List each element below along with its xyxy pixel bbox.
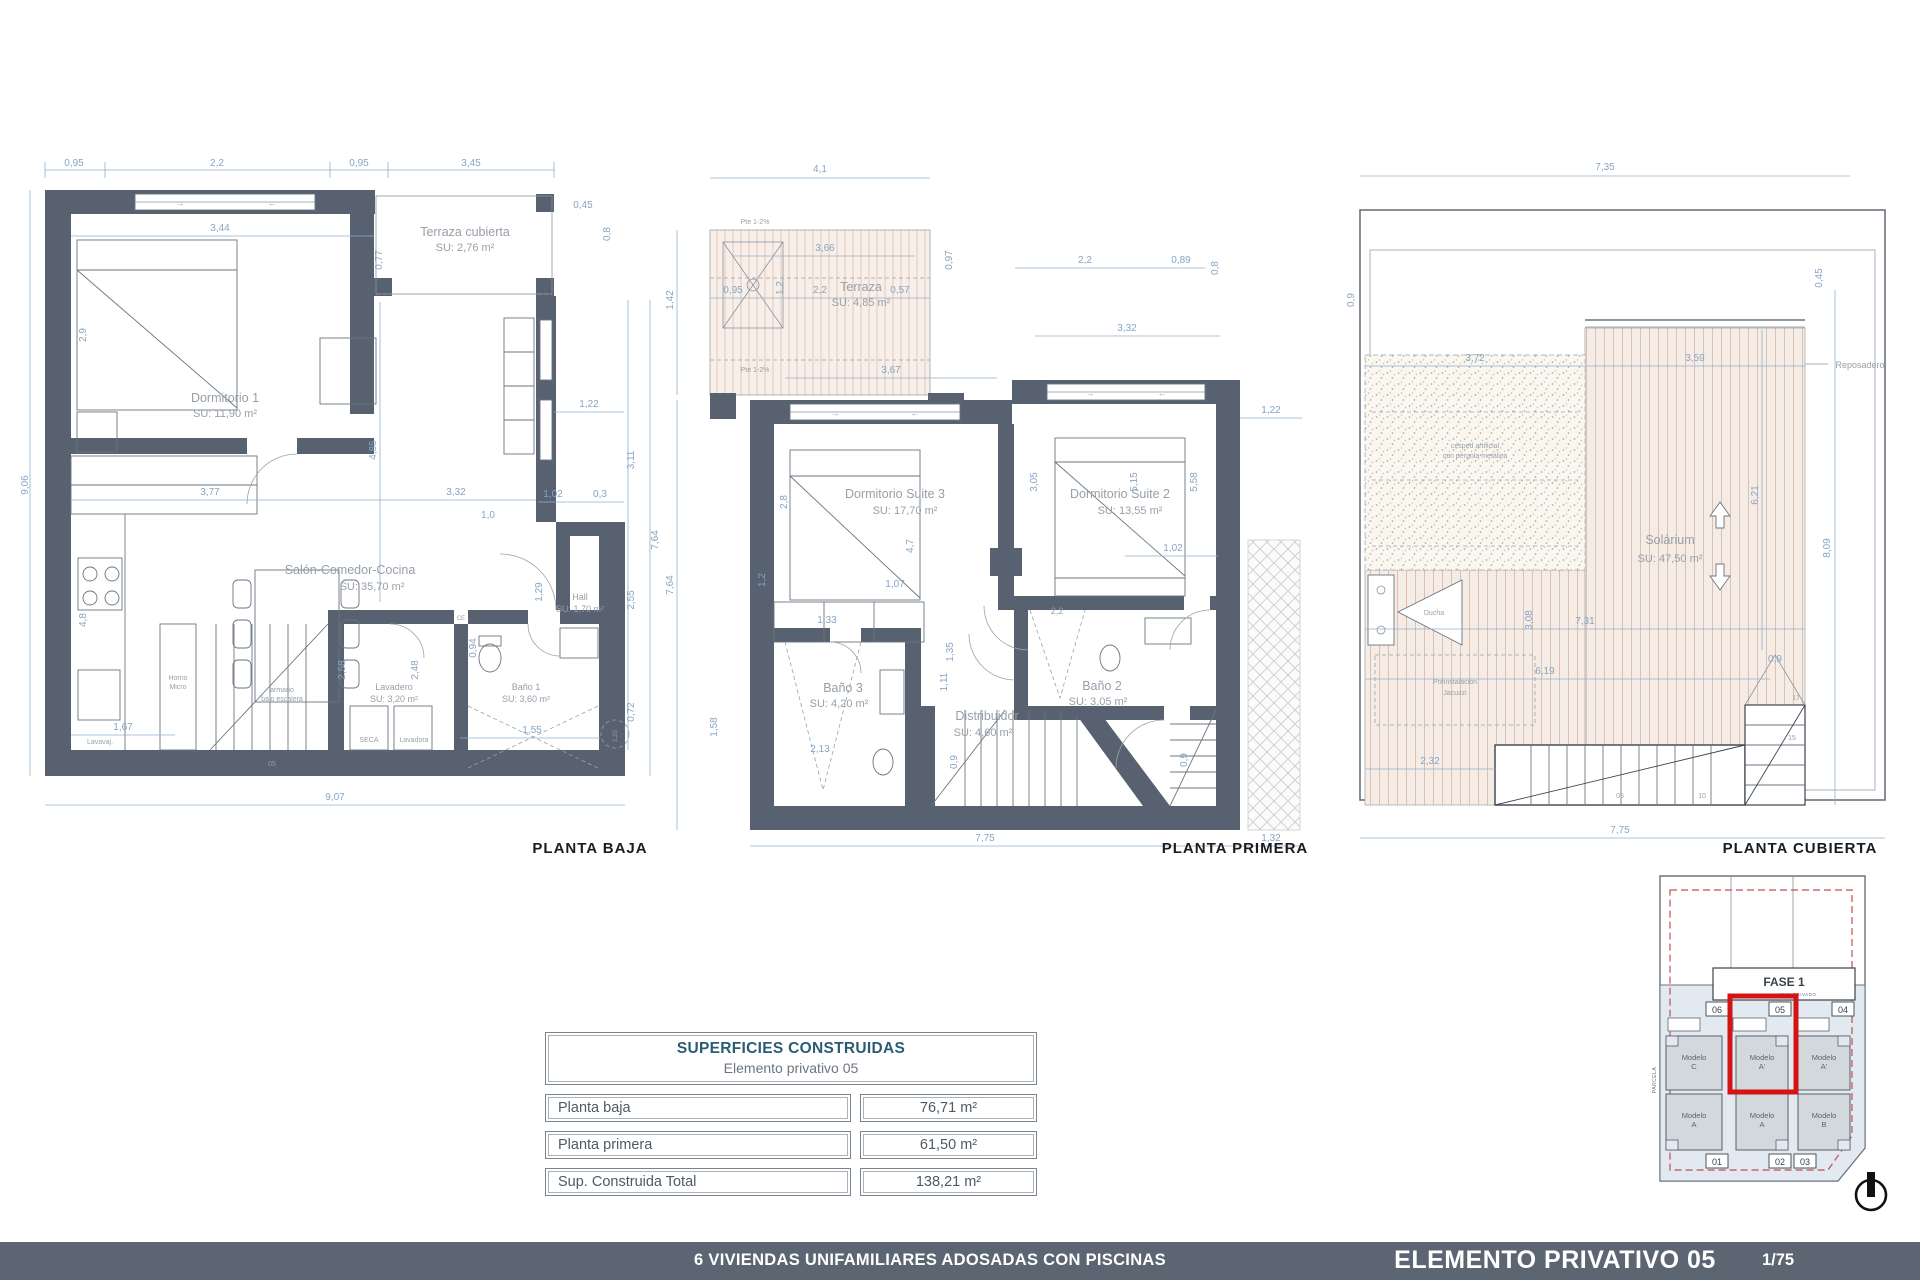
annotation: con pérgola metálica <box>1443 453 1508 460</box>
project-title: 6 VIVIENDAS UNIFAMILIARES ADOSADAS CON P… <box>620 1251 1240 1270</box>
stair-number: 05 <box>268 761 276 768</box>
dim-label: 3,72 <box>1465 353 1485 364</box>
stair-number: 10 <box>1698 793 1706 800</box>
dim-label: 1,29 <box>534 582 545 602</box>
model-label: B <box>1821 1120 1826 1129</box>
dim-label: 1,42 <box>665 290 676 310</box>
dim-label: 0,45 <box>573 200 593 211</box>
dim-label: 0,94 <box>468 638 479 658</box>
dim-label: 7,31 <box>1575 616 1595 627</box>
dim-label: 1,11 <box>939 672 950 691</box>
model-label: A <box>1691 1120 1696 1129</box>
room-label: Lavadero <box>375 682 413 692</box>
sheet-title: ELEMENTO PRIVATIVO 05 <box>1340 1246 1770 1275</box>
dim-label: 1,35 <box>945 642 956 662</box>
dim-label: 3,59 <box>1685 353 1705 364</box>
fase-label: FASE 1 <box>1763 975 1805 989</box>
plot-number: 03 <box>1800 1157 1810 1167</box>
dim-label: 8,09 <box>1822 538 1833 558</box>
room-area: SU: 3,60 m² <box>502 694 550 704</box>
dim-label: 0,95 <box>349 158 369 169</box>
dim-label: 1,2 <box>775 281 786 295</box>
model-label: Modelo <box>1750 1053 1775 1062</box>
cubierta-surfaces <box>1365 328 1805 805</box>
annotation: Lavadora <box>399 737 428 744</box>
dim-label: 3,45 <box>461 158 481 169</box>
dim-label: 3,11 <box>626 450 637 469</box>
planta-primera-drawing: 4,1 1,42 3,66 0,95 1,2 2,2 0,57 0,97 2,2… <box>665 150 1310 860</box>
site-garden-strips <box>1668 1018 1829 1031</box>
window-arrow: → <box>176 198 185 208</box>
dim-label: 0,72 <box>626 702 637 722</box>
dim-label: 0,8 <box>602 227 613 241</box>
row-value-planta-baja: 76,71 m² <box>860 1094 1037 1122</box>
dim-label: 2,32 <box>1420 756 1440 767</box>
dim-label: 1,20 <box>613 730 619 742</box>
table-row: Planta primera 61,50 m² <box>545 1131 1037 1159</box>
model-label: Modelo <box>1812 1053 1837 1062</box>
dim-label: 2,9 <box>78 328 89 342</box>
dim-label: 3,32 <box>446 487 466 498</box>
annotation: armario <box>270 687 294 694</box>
dim-label: 0,45 <box>1814 268 1825 288</box>
room-label: Salón-Comedor-Cocina <box>285 563 416 577</box>
room-area: SU: 11,90 m² <box>193 408 257 420</box>
primera-walls <box>710 380 1240 830</box>
dim-label: 1,55 <box>522 725 542 736</box>
annotation: CE <box>457 616 465 622</box>
surfaces-table: SUPERFICIES CONSTRUIDAS Elemento privati… <box>545 1032 1037 1196</box>
room-area: SU: 2,76 m² <box>436 242 495 254</box>
dim-label: 2,2 <box>1078 255 1092 266</box>
annotation: bajo escalera <box>261 696 303 703</box>
dim-label: 7,75 <box>975 833 995 844</box>
dim-label: 0,9 <box>949 755 960 769</box>
baja-annotations: armario bajo escalera SECA Lavadora Lava… <box>87 198 465 746</box>
dim-label: 0,57 <box>890 285 910 296</box>
dim-label: 1,2 <box>757 573 768 587</box>
plot-number: 01 <box>1712 1157 1722 1167</box>
model-label: Modelo <box>1812 1111 1837 1120</box>
dim-label: 4,7 <box>905 539 916 553</box>
plot-number: 02 <box>1775 1157 1785 1167</box>
model-label: A <box>1759 1120 1764 1129</box>
dim-label: 7,64 <box>665 575 676 595</box>
baja-stairs <box>210 624 328 750</box>
dim-label: 3,77 <box>200 487 220 498</box>
dim-label: 0,3 <box>593 489 607 500</box>
room-area: SU: 4,85 m² <box>832 297 891 309</box>
room-label: Baño 2 <box>1082 679 1122 693</box>
dim-label: 2,55 <box>626 590 637 610</box>
model-label: C <box>1691 1062 1697 1071</box>
stair-number: 17 <box>1792 695 1800 702</box>
room-label: Terraza <box>840 280 882 294</box>
plot-number: 04 <box>1838 1005 1848 1015</box>
surfaces-table-title: SUPERFICIES CONSTRUIDAS <box>546 1040 1036 1058</box>
room-label: Dormitorio Suite 3 <box>845 487 945 501</box>
dim-label: 0,8 <box>1210 261 1221 275</box>
dim-label: 2,13 <box>810 744 830 755</box>
plan-title-cubierta: PLANTA CUBIERTA <box>1660 840 1920 857</box>
table-row: Sup. Construida Total 138,21 m² <box>545 1168 1037 1196</box>
dim-label: 1,02 <box>1163 543 1183 554</box>
site-plan: FASE 1 VIAL PRIVADO 06 05 04 01 02 03 Mo… <box>1648 868 1920 1228</box>
dim-label: 2,2 <box>1051 606 1064 616</box>
room-area: SU: 17,70 m² <box>873 505 938 517</box>
dim-label: 4,8 <box>78 613 89 627</box>
dim-label: 1,67 <box>113 722 133 733</box>
surfaces-table-subtitle: Elemento privativo 05 <box>546 1060 1036 1076</box>
window-arrow: → <box>831 408 840 418</box>
dim-label: 7,75 <box>1610 825 1630 836</box>
dim-label: 6,21 <box>1750 485 1761 505</box>
planta-baja-drawing: 0,95 2,2 0,95 3,45 3,44 0,77 0,45 0,8 9,… <box>20 150 670 850</box>
dim-label: 1,02 <box>543 489 563 500</box>
annotation: Jacuzzi <box>1443 690 1467 697</box>
table-row: Planta baja 76,71 m² <box>545 1094 1037 1122</box>
dim-label: 0,89 <box>1171 255 1191 266</box>
window-arrow: ← <box>1158 388 1167 398</box>
model-label: A' <box>1821 1062 1828 1071</box>
annotation: Lavavaj. <box>87 739 113 746</box>
row-label-planta-baja: Planta baja <box>545 1094 851 1122</box>
dim-label: 0,9 <box>1346 293 1357 307</box>
room-area: SU: 3,05 m² <box>1069 696 1128 708</box>
room-area: SU: 3,20 m² <box>370 694 418 704</box>
stair-number: 05 <box>1616 793 1624 800</box>
planta-cubierta-drawing: 7,35 0,45 3,72 3,59 6,21 8,09 3,08 7,31 … <box>1330 150 1920 860</box>
baja-door-arcs <box>247 454 560 658</box>
dim-label: 0,77 <box>374 250 385 270</box>
dim-label: 1,58 <box>709 717 720 737</box>
parcela-label: PARCELA <box>1652 1067 1658 1094</box>
annotation: Reposadero <box>1835 360 1884 370</box>
dim-label: 9,06 <box>20 475 31 495</box>
dim-label: 1,22 <box>579 399 599 410</box>
stair-number: 15 <box>1788 735 1796 742</box>
model-label: Modelo <box>1682 1053 1707 1062</box>
window-arrow: → <box>1086 388 1095 398</box>
north-arrow-icon <box>1856 1172 1886 1210</box>
room-label: Dormitorio Suite 2 <box>1070 487 1170 501</box>
room-area: SU: 35,70 m² <box>340 581 405 593</box>
room-area: SU: 13,55 m² <box>1098 505 1163 517</box>
surfaces-table-header: SUPERFICIES CONSTRUIDAS Elemento privati… <box>545 1032 1037 1085</box>
dim-label: 0,9 <box>1179 753 1190 767</box>
dim-label: 2,48 <box>410 660 421 680</box>
dim-label: 1,0 <box>481 510 495 521</box>
window-arrow: ← <box>911 408 920 418</box>
dim-label: 0,95 <box>64 158 84 169</box>
room-label: Baño 1 <box>512 682 541 692</box>
dim-label: 3,67 <box>881 365 901 376</box>
dim-label: 7,64 <box>650 530 661 550</box>
dim-label: 2,2 <box>813 285 827 296</box>
dim-label: 1,33 <box>817 615 837 626</box>
annotation: Pte 1-2% <box>741 367 770 374</box>
room-area: SU: 4,60 m² <box>954 727 1013 739</box>
annotation: césped artificial <box>1451 443 1500 450</box>
plot-number: 05 <box>1775 1005 1785 1015</box>
dim-label: 4,85 <box>368 440 379 460</box>
dim-label: 2,58 <box>337 660 348 680</box>
room-label: Hall <box>572 592 588 602</box>
row-label-planta-primera: Planta primera <box>545 1131 851 1159</box>
room-area: SU: 1,70 m² <box>556 604 604 614</box>
dim-label: 6,19 <box>1535 666 1555 677</box>
dim-label: 3,32 <box>1117 323 1137 334</box>
room-label: Solárium <box>1645 533 1694 547</box>
room-label: Baño 3 <box>823 681 863 695</box>
room-area: SU: 4,20 m² <box>810 698 869 710</box>
plot-number: 06 <box>1712 1005 1722 1015</box>
dim-label: 2,2 <box>210 158 224 169</box>
model-label: Modelo <box>1682 1111 1707 1120</box>
dim-label: 7,35 <box>1595 162 1615 173</box>
room-area: SU: 47,50 m² <box>1638 553 1703 565</box>
annotation: Horno <box>168 675 187 682</box>
dim-label: 5,58 <box>1189 472 1200 492</box>
dim-label: 3,66 <box>815 243 835 254</box>
room-label: Distribuidor <box>955 709 1018 723</box>
dim-label: 3,05 <box>1029 472 1040 492</box>
annotation: Pte 1-2% <box>741 219 770 226</box>
primera-neighbour-hatch <box>1248 540 1300 830</box>
dim-label: 2,8 <box>779 495 790 509</box>
page-number: 1/75 <box>1762 1251 1842 1270</box>
room-label: Terraza cubierta <box>420 225 510 239</box>
annotation: SECA <box>359 737 378 744</box>
dim-label: 0,97 <box>944 250 955 270</box>
model-label: A' <box>1759 1062 1766 1071</box>
dim-label: 3,44 <box>210 223 230 234</box>
dim-label: 3,08 <box>1524 610 1535 630</box>
annotation: Ducha <box>1424 610 1444 617</box>
dim-label: 1,22 <box>1261 405 1281 416</box>
dim-label: 1,07 <box>885 579 905 590</box>
row-value-planta-primera: 61,50 m² <box>860 1131 1037 1159</box>
window-arrow: ← <box>268 198 277 208</box>
room-label: Dormitorio 1 <box>191 391 259 405</box>
annotation: Micro <box>169 684 186 691</box>
dim-label: 0,9 <box>1768 654 1782 665</box>
dim-label: 4,1 <box>813 164 827 175</box>
annotation: Preinstalación <box>1433 679 1477 686</box>
dim-label: 0,95 <box>723 285 743 296</box>
row-label-total: Sup. Construida Total <box>545 1168 851 1196</box>
model-label: Modelo <box>1750 1111 1775 1120</box>
dim-label: 9,07 <box>325 792 345 803</box>
row-value-total: 138,21 m² <box>860 1168 1037 1196</box>
